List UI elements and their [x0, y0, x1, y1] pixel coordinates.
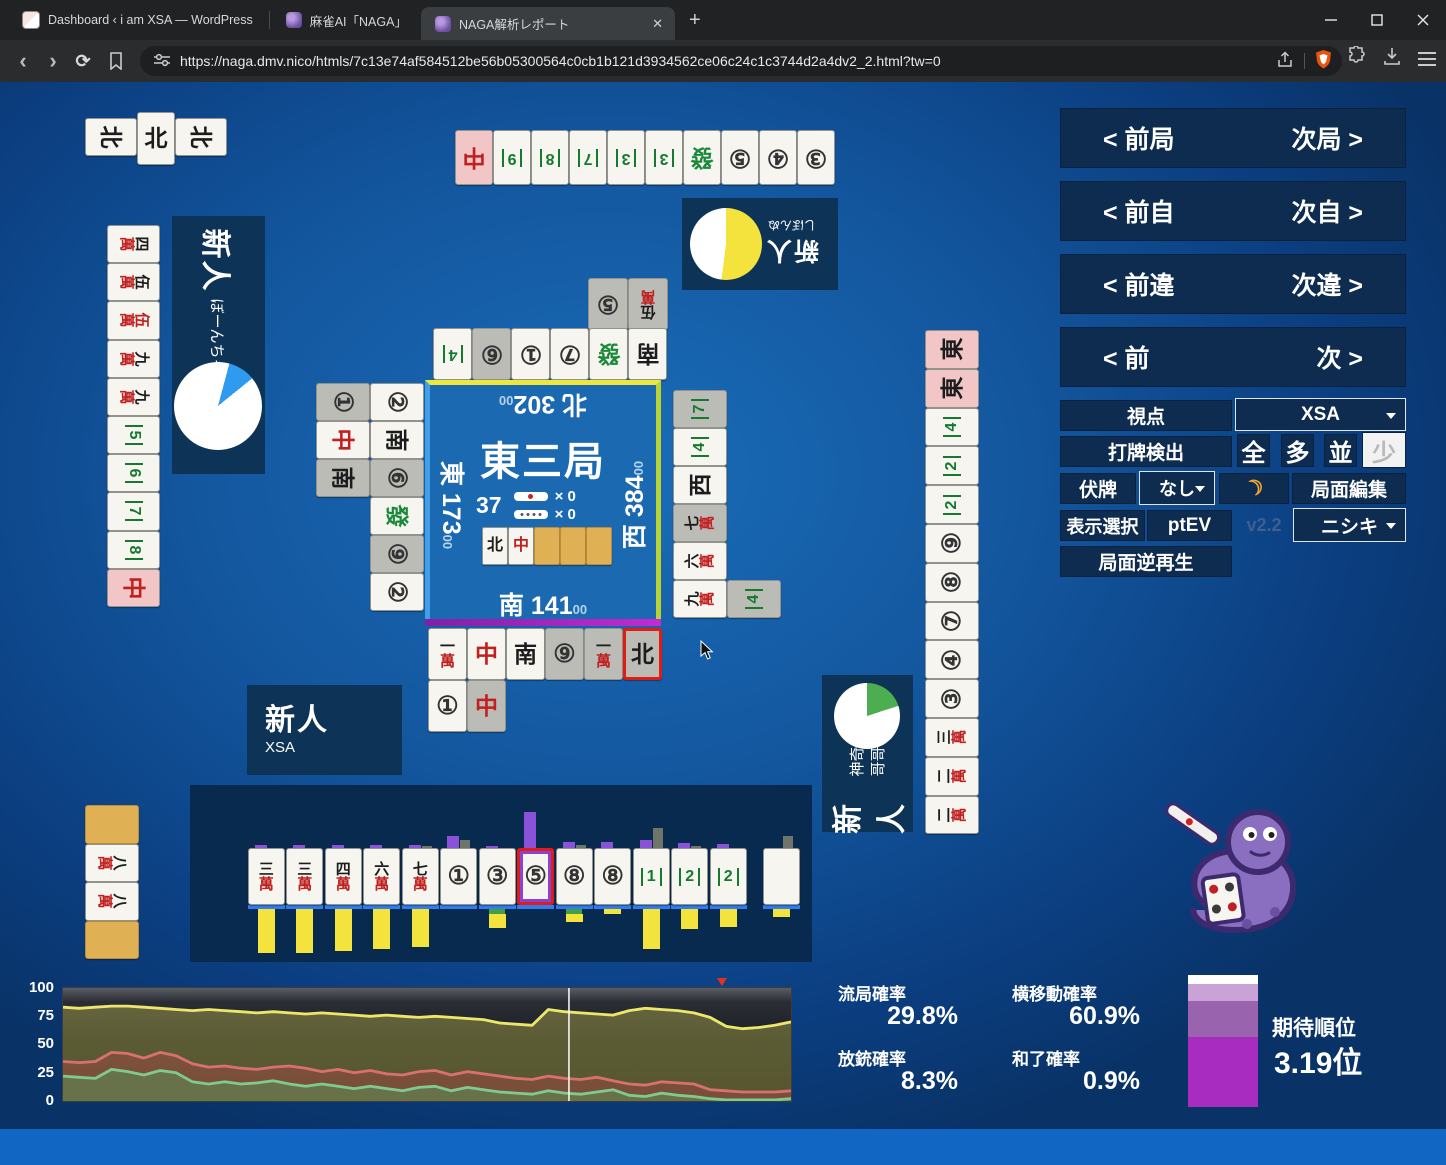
mahjong-tile-back — [85, 805, 139, 844]
viewpoint-label: 視点 — [1060, 400, 1232, 431]
ptev-button[interactable]: ptEV — [1147, 510, 1232, 541]
north-discards-row1: 4⑥①⑦發南 — [433, 328, 667, 380]
hand-slot: 2 — [709, 808, 748, 927]
west-player-plate: 新人 神奇的大哥哥 — [822, 675, 913, 832]
nav-row-0: < 前局次局 > — [1060, 108, 1406, 168]
maximize-button[interactable] — [1354, 0, 1400, 40]
brave-shield-icon[interactable] — [1315, 50, 1332, 72]
mahjong-tile-6s: 6 — [107, 454, 160, 492]
south-player-plate: 新人 XSA — [247, 685, 402, 775]
tab-strip: Dashboard ‹ i am XSA — WordPress麻雀AI「NAG… — [8, 0, 701, 40]
west-player-rank: 新人 — [823, 782, 911, 834]
north-meld: 北北北 — [85, 112, 227, 165]
mahjong-tile-5s: 5 — [107, 416, 160, 454]
mahjong-tile-4p: ④ — [925, 640, 979, 679]
mahjong-tile-back — [85, 921, 139, 960]
mahjong-tile-S: 南 — [370, 421, 424, 459]
south-discards-row2: ①中 — [428, 680, 506, 732]
mahjong-tile-4p: ④ — [759, 130, 797, 185]
hand-slot: 1 — [632, 808, 671, 949]
mahjong-tile-1m: 一萬 — [584, 628, 623, 680]
east-player-rank: 新人 — [196, 228, 240, 292]
west-discards-outer: 4 — [727, 580, 781, 618]
south-player-name: XSA — [265, 739, 402, 756]
mahjong-tile-3s: 3 — [645, 130, 683, 185]
mahjong-tile-8m: 八萬 — [85, 844, 139, 883]
prev-button[interactable]: < 前自 — [1103, 193, 1175, 229]
naga-snake-icon — [435, 16, 451, 32]
mahjong-tile-7s: 7 — [673, 390, 727, 428]
tab-title: NAGA解析レポート — [459, 14, 569, 33]
mahjong-tile-4m: 四萬 — [107, 225, 160, 263]
y-axis-tick: 75 — [18, 1007, 54, 1024]
rank-bar-segment — [1188, 984, 1258, 1001]
south-player-rank: 新人 — [265, 695, 402, 739]
mahjong-tile-S: 南 — [628, 328, 667, 380]
hand-slot: 四萬 — [324, 808, 363, 951]
mahjong-tile-5m: 伍萬 — [107, 263, 160, 301]
mahjong-tile-9m: 九萬 — [107, 378, 160, 416]
mahjong-tile-S: 南 — [506, 628, 545, 680]
prev-button[interactable]: < 前局 — [1103, 120, 1175, 156]
y-axis-tick: 0 — [18, 1092, 54, 1109]
east-discards-outer: ①中南 — [316, 383, 370, 497]
hand-slot: 三萬 — [286, 808, 325, 953]
turn-marker — [717, 978, 727, 986]
mahjong-tile-2m: 二萬 — [925, 757, 979, 796]
mahjong-tile-8p[interactable]: ⑧ — [556, 848, 593, 905]
browser-tab-2[interactable]: NAGA解析レポート✕ — [421, 7, 675, 40]
riichi-stick-count: × 0 — [555, 488, 576, 505]
mahjong-tile-4m[interactable]: 四萬 — [325, 848, 362, 905]
mahjong-tile-3p: ③ — [925, 679, 979, 718]
mahjong-tile-9p: ⑨ — [925, 524, 979, 563]
mahjong-tile-5p[interactable]: ⑤ — [517, 848, 554, 905]
fusehai-select[interactable]: なし — [1139, 471, 1215, 505]
mahjong-tile-9m: 九萬 — [107, 340, 160, 378]
hand-slot: ① — [440, 808, 479, 909]
kyokumen-edit-button[interactable]: 局面編集 — [1292, 473, 1406, 504]
mahjong-tile-9p: ⑨ — [370, 535, 424, 573]
mahjong-tile-back — [586, 527, 612, 565]
browser-tab-1[interactable]: 麻雀AI「NAGA」 — [272, 0, 421, 40]
mahjong-tile-E: 東 — [925, 369, 979, 408]
viewpoint-select[interactable]: XSA — [1235, 398, 1406, 431]
nav-row-3: < 前次 > — [1060, 327, 1406, 387]
mahjong-tile-3m[interactable]: 三萬 — [248, 848, 285, 905]
mahjong-tile-8m: 八萬 — [85, 882, 139, 921]
fusehai-label: 伏牌 — [1060, 473, 1136, 504]
version-label: v2.2 — [1240, 510, 1288, 541]
close-window-button[interactable] — [1400, 0, 1446, 40]
mahjong-tile-2s: 2 — [925, 485, 979, 524]
mahjong-tile-8p[interactable]: ⑧ — [594, 848, 631, 905]
tab-title: Dashboard ‹ i am XSA — WordPress — [48, 13, 253, 27]
prev-button[interactable]: < 前 — [1103, 339, 1150, 375]
east-ankan-meld: 八萬八萬 — [85, 805, 139, 959]
back-icon[interactable]: ‹ — [10, 48, 36, 74]
browser-tab-0[interactable]: Dashboard ‹ i am XSA — WordPress — [8, 0, 267, 40]
mahjong-tile-F: 發 — [370, 497, 424, 535]
rank-bar-segment — [1188, 1001, 1258, 1037]
east-hand: 四萬伍萬伍萬九萬九萬5678中 — [107, 225, 160, 607]
mahjong-tile-1p: ① — [316, 383, 370, 421]
download-icon[interactable] — [1382, 46, 1402, 71]
expected-rank-bar — [1188, 975, 1258, 1107]
honba-stick-icon — [514, 510, 548, 519]
divider — [1304, 53, 1305, 69]
mahjong-tile-0m: 伍萬 — [107, 301, 160, 339]
mahjong-tile-C: 中 — [467, 680, 506, 732]
bottom-strip — [0, 1129, 1446, 1165]
y-axis-tick: 100 — [18, 979, 54, 996]
hand-slot: 六萬 — [363, 808, 402, 949]
mahjong-tile-2s[interactable]: 2 — [710, 848, 747, 905]
riichi-stick-icon — [514, 492, 548, 501]
mahjong-tile-7s: 7 — [569, 130, 607, 185]
south-score: 南 14100 — [430, 586, 656, 622]
mahjong-tile-blank[interactable] — [763, 848, 800, 905]
dahai-option-少[interactable]: 少 — [1362, 432, 1406, 468]
wall-count: 37 — [476, 492, 502, 519]
south-discards-row1: 一萬中南⑨一萬北 — [428, 628, 662, 680]
mahjong-tile-9m: 九萬 — [673, 580, 727, 618]
mahjong-tile-3p: ③ — [797, 130, 835, 185]
hand-slot: ⑧ — [555, 808, 594, 922]
west-player-name: 神奇的大哥哥 — [846, 704, 888, 776]
url-text[interactable]: https://naga.dmv.nico/htmls/7c13e74af584… — [180, 53, 1276, 69]
mahjong-tile-N: 北 — [482, 527, 508, 565]
north-score: 北 30200 — [430, 388, 656, 424]
mahjong-tile-1p: ① — [511, 328, 550, 380]
tab-title: 麻雀AI「NAGA」 — [310, 11, 407, 30]
game-stage: 北北北 四萬伍萬伍萬九萬九萬5678中 新人 ぼーんちゃ 中98733發⑤④③ … — [0, 82, 1446, 1165]
winrate-chart — [62, 987, 792, 1102]
next-button[interactable]: 次違 > — [1291, 266, 1363, 302]
mahjong-tile-7m: 七萬 — [673, 504, 727, 542]
naga-snake-icon — [286, 12, 302, 28]
minimize-button[interactable] — [1308, 0, 1354, 40]
mahjong-tile-N: 北 — [175, 118, 227, 156]
page: Dashboard ‹ i am XSA — WordPress麻雀AI「NAG… — [0, 0, 1446, 1165]
mahjong-tile-5m: 伍萬 — [628, 278, 668, 330]
east-discards-inner: ②南⑥發⑨② — [370, 383, 424, 611]
mahjong-tile-8s: 8 — [107, 531, 160, 569]
yokoido-value: 60.9% — [1012, 1002, 1140, 1031]
share-icon[interactable] — [1276, 51, 1294, 72]
site-settings-icon[interactable] — [154, 53, 170, 70]
wordpress-site-icon — [22, 11, 40, 29]
browser-titlebar: Dashboard ‹ i am XSA — WordPress麻雀AI「NAG… — [0, 0, 1446, 40]
next-button[interactable]: 次局 > — [1291, 120, 1363, 156]
center-info-box: 北 30200 東 17300 西 38400 東三局 37 × 0 × 0 北… — [425, 380, 661, 625]
mouse-cursor — [700, 640, 714, 661]
mahjong-tile-4s: 4 — [925, 408, 979, 447]
hand-slot: ③ — [478, 808, 517, 928]
west-discards-inner: 74西七萬六萬九萬 — [673, 390, 727, 618]
display-select-label: 表示選択 — [1060, 510, 1145, 541]
mahjong-tile-6p: ⑥ — [472, 328, 511, 380]
hand-slot — [763, 808, 802, 917]
mahjong-tile-7s: 7 — [107, 492, 160, 530]
mahjong-tile-2p: ② — [370, 573, 424, 611]
mahjong-tile-6m[interactable]: 六萬 — [363, 848, 400, 905]
reload-icon[interactable]: ⟳ — [70, 48, 96, 74]
mahjong-tile-7p: ⑦ — [925, 602, 979, 641]
mahjong-tile-7m[interactable]: 七萬 — [402, 848, 439, 905]
mahjong-tile-8p: ⑧ — [925, 563, 979, 602]
mahjong-tile-E: 東 — [925, 330, 979, 369]
mahjong-tile-W: 西 — [673, 466, 727, 504]
expected-rank-value: 3.19位 — [1274, 1038, 1362, 1082]
hand-slot: 2 — [671, 808, 710, 929]
window-controls — [1308, 0, 1446, 40]
dahai-option-多[interactable]: 多 — [1281, 434, 1314, 467]
north-player-name: しぼんぬ — [768, 218, 816, 235]
center-south-border — [425, 619, 661, 626]
model-select[interactable]: ニシキ — [1293, 508, 1406, 542]
new-tab-button[interactable]: + — [689, 9, 701, 32]
mahjong-tile-F: 發 — [589, 328, 628, 380]
next-button[interactable]: 次自 > — [1291, 193, 1363, 229]
nav-row-1: < 前自次自 > — [1060, 181, 1406, 241]
hoju-value: 8.3% — [838, 1067, 958, 1096]
mahjong-tile-S: 南 — [316, 459, 370, 497]
mahjong-tile-C: 中 — [455, 130, 493, 185]
mahjong-tile-F: 發 — [683, 130, 721, 185]
round-info: 37 × 0 × 0 — [476, 489, 576, 521]
mahjong-tile-N: 北 — [623, 628, 662, 680]
mahjong-tile-N: 北 — [85, 118, 137, 156]
north-player-plate: 新人 しぼんぬ — [682, 198, 838, 290]
south-hand: 三萬三萬四萬六萬七萬①③⑤⑧⑧122 — [247, 808, 801, 953]
rank-bar-segment — [1188, 975, 1258, 984]
y-axis-tick: 50 — [18, 1035, 54, 1052]
mahjong-tile-3p[interactable]: ③ — [479, 848, 516, 905]
url-bar[interactable]: https://naga.dmv.nico/htmls/7c13e74af584… — [140, 46, 1342, 76]
hand-slot: ⑤ — [517, 808, 556, 909]
honba-stick-count: × 0 — [555, 506, 576, 523]
mahjong-tile-4s: 4 — [673, 428, 727, 466]
mahjong-tile-5p: ⑤ — [721, 130, 759, 185]
moon-icon: ☽ — [1240, 473, 1268, 504]
hand-slot: 七萬 — [401, 808, 440, 947]
extensions-puzzle-icon[interactable] — [1346, 46, 1366, 71]
next-button[interactable]: 次 > — [1316, 339, 1363, 375]
dahai-option-全[interactable]: 全 — [1237, 434, 1270, 467]
mahjong-tile-3s: 3 — [607, 130, 645, 185]
prev-button[interactable]: < 前違 — [1103, 266, 1175, 302]
mahjong-tile-1p: ① — [428, 680, 467, 732]
menu-icon[interactable] — [1418, 52, 1436, 66]
round-label: 東三局 — [430, 429, 656, 487]
dahai-option-並[interactable]: 並 — [1324, 434, 1357, 467]
bookmark-icon[interactable] — [103, 48, 129, 74]
east-player-plate: 新人 ぼーんちゃ — [172, 216, 265, 474]
dora-wall: 北中 — [482, 527, 612, 565]
mahjong-tile-C: 中 — [107, 569, 160, 607]
mahjong-tile-1s[interactable]: 1 — [633, 848, 670, 905]
nav-row-2: < 前違次違 > — [1060, 254, 1406, 314]
mahjong-tile-1p[interactable]: ① — [440, 848, 477, 905]
tab-close-icon[interactable]: ✕ — [650, 16, 665, 32]
mahjong-tile-8s: 8 — [531, 130, 569, 185]
mahjong-tile-9p: ⑨ — [545, 628, 584, 680]
mahjong-tile-2s: 2 — [925, 446, 979, 485]
mahjong-tile-6p: ⑥ — [370, 459, 424, 497]
mahjong-tile-6m: 六萬 — [673, 542, 727, 580]
dahai-detect-label: 打牌検出 — [1060, 436, 1232, 467]
forward-icon[interactable]: › — [40, 48, 66, 74]
naga-mascot — [1155, 790, 1315, 945]
mahjong-tile-back — [560, 527, 586, 565]
mahjong-tile-2p: ② — [370, 383, 424, 421]
mahjong-tile-N: 北 — [137, 112, 175, 165]
mahjong-tile-7p: ⑦ — [550, 328, 589, 380]
west-hand: 東東422⑨⑧⑦④③三萬二萬二萬 — [925, 330, 979, 834]
mahjong-tile-3m[interactable]: 三萬 — [286, 848, 323, 905]
mahjong-tile-3m: 三萬 — [925, 718, 979, 757]
mahjong-tile-9s: 9 — [493, 130, 531, 185]
mahjong-tile-2s[interactable]: 2 — [671, 848, 708, 905]
mahjong-tile-1m: 一萬 — [428, 628, 467, 680]
hand-slot: 三萬 — [247, 808, 286, 953]
mahjong-tile-4s: 4 — [727, 580, 781, 618]
north-hand: 中98733發⑤④③ — [455, 130, 835, 185]
y-axis-tick: 25 — [18, 1064, 54, 1081]
north-discards-row2: ⑤伍萬 — [588, 278, 668, 330]
rank-bar-segment — [1188, 1037, 1258, 1107]
mahjong-tile-C: 中 — [316, 421, 370, 459]
mahjong-tile-back — [534, 527, 560, 565]
mahjong-tile-C: 中 — [508, 527, 534, 565]
ryukyoku-value: 29.8% — [838, 1002, 958, 1031]
north-player-rank: 新人 — [765, 235, 819, 271]
mahjong-tile-5p: ⑤ — [588, 278, 628, 330]
reverse-play-button[interactable]: 局面逆再生 — [1060, 546, 1232, 577]
night-mode-button[interactable]: ☽ — [1219, 473, 1289, 504]
hora-value: 0.9% — [1012, 1067, 1140, 1096]
mahjong-tile-C: 中 — [467, 628, 506, 680]
mahjong-tile-2m: 二萬 — [925, 796, 979, 835]
hand-slot: ⑧ — [594, 808, 633, 914]
mahjong-tile-4s: 4 — [433, 328, 472, 380]
east-rank-pie — [174, 362, 262, 450]
